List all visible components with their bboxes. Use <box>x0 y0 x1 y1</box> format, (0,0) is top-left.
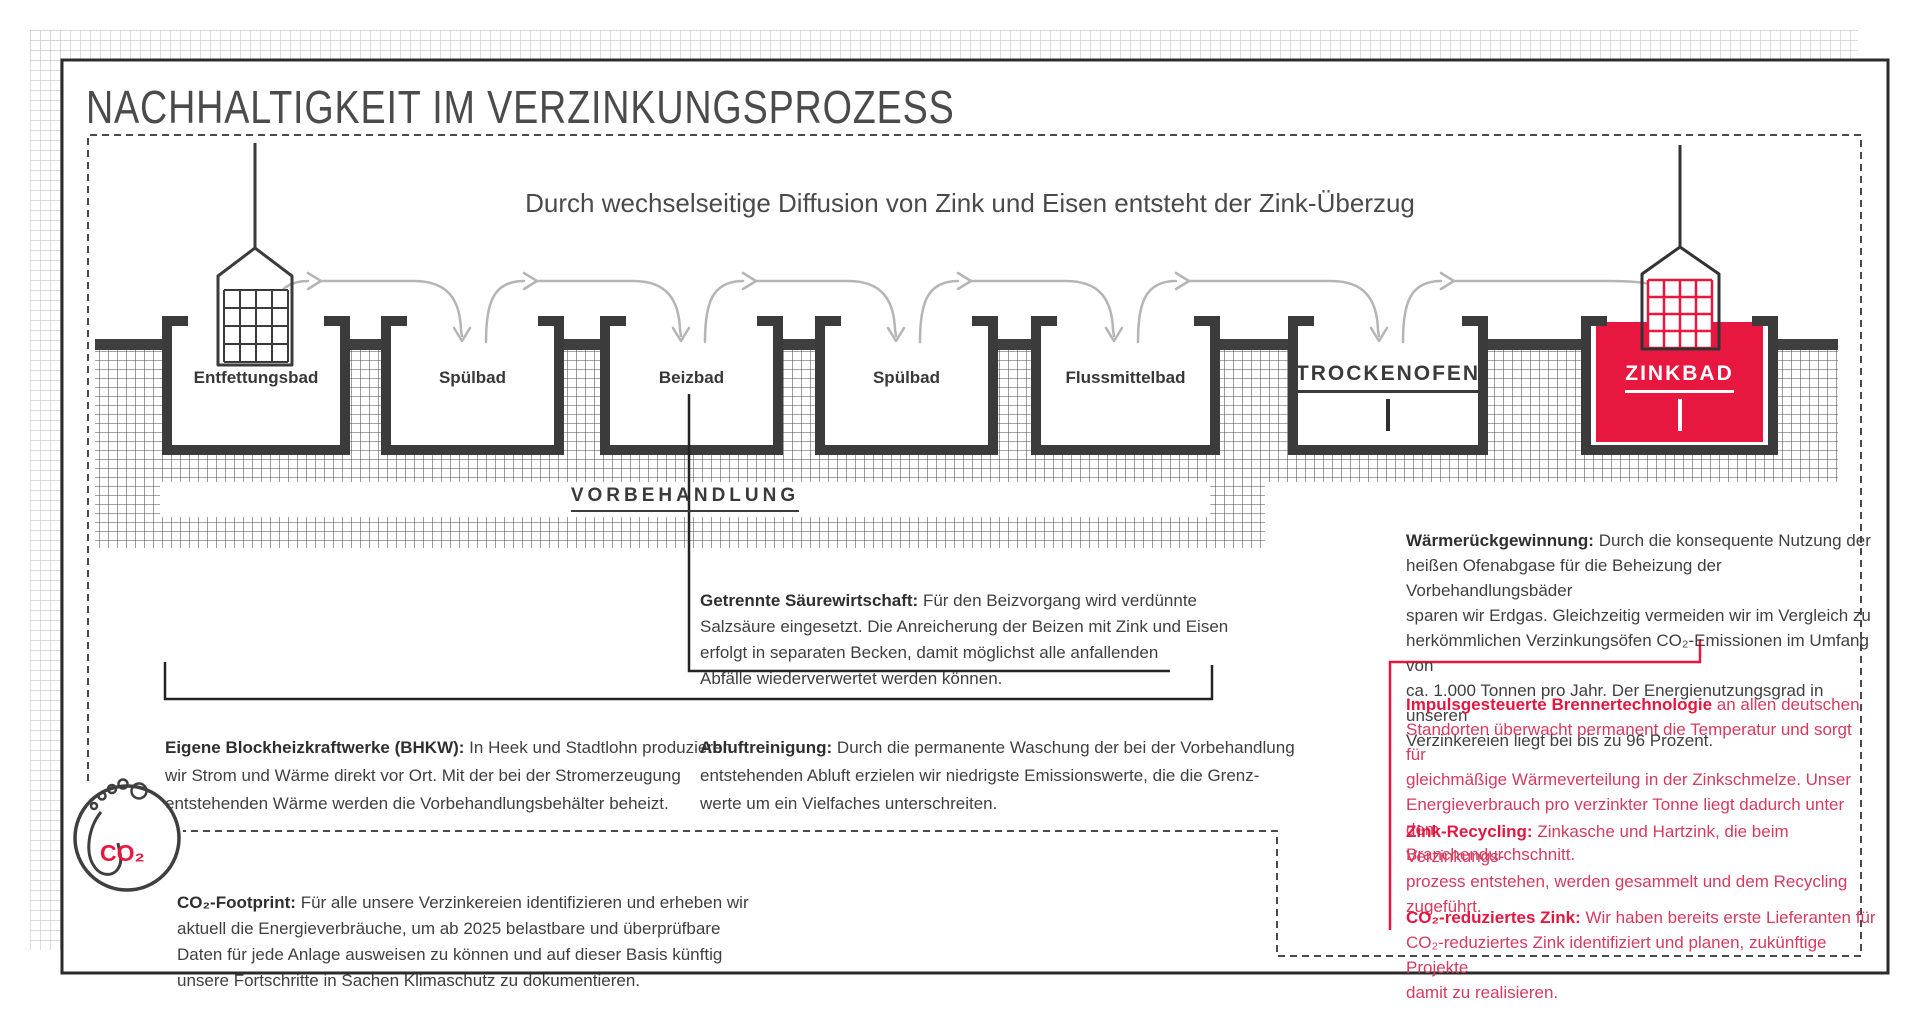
bath-label-beizbad: Beizbad <box>600 368 783 388</box>
page-grid-left-band <box>30 30 62 950</box>
zinkbad-tick <box>1678 399 1682 431</box>
process-subtitle: Durch wechselseitige Diffusion von Zink … <box>500 188 1440 219</box>
zinkbad-label: ZINKBAD <box>1581 362 1778 393</box>
bath-label-spuelbad-1: Spülbad <box>381 368 564 388</box>
note-bhkw: Eigene Blockheizkraftwerke (BHKW): In He… <box>165 706 785 818</box>
vorbehandlung-label: VORBEHANDLUNG <box>160 485 1210 512</box>
page-title: NACHHALTIGKEIT IM VERZINKUNGSPROZESS <box>86 80 955 134</box>
note-co2-footprint: CO₂-Footprint: Für alle unsere Verzinker… <box>177 864 797 994</box>
note-getrennte-saeurewirtschaft: Getrennte Säurewirtschaft: Für den Beizv… <box>700 562 1300 692</box>
bath-label-entfettungsbad: Entfettungsbad <box>162 368 350 388</box>
bath-label-spuelbad-2: Spülbad <box>815 368 998 388</box>
note-co2-reduziertes-zink: CO₂-reduziertes Zink: Wir haben bereits … <box>1406 880 1876 1005</box>
bath-label-flussmittelbad: Flussmittelbad <box>1031 368 1220 388</box>
co2-icon-label: CO₂ <box>100 840 145 866</box>
trockenofen-label: TROCKENOFEN <box>1288 362 1488 393</box>
page-grid-top-band <box>30 30 1858 62</box>
note-abluftreinigung: Abluftreinigung: Durch die permanente Wa… <box>700 706 1340 818</box>
trockenofen-tick <box>1386 399 1390 431</box>
